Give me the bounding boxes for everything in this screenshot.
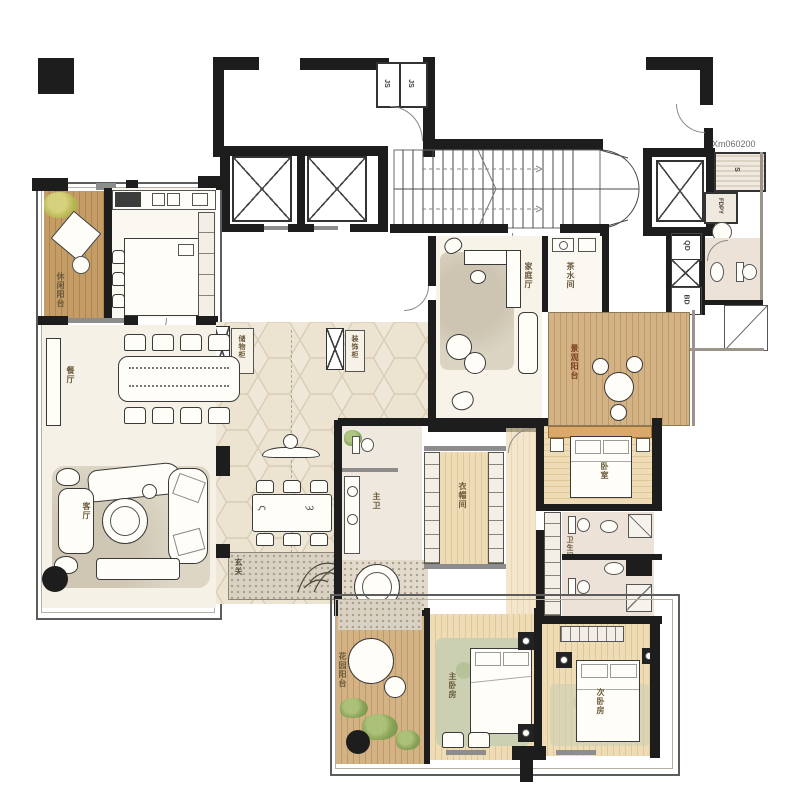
column-circle bbox=[346, 730, 370, 754]
elevator-door bbox=[264, 226, 288, 230]
wall bbox=[32, 178, 68, 191]
shower-icon bbox=[628, 514, 652, 538]
plan-marker-square bbox=[38, 58, 74, 94]
staircase-icon bbox=[392, 148, 672, 230]
room-label-family: 家庭厅 bbox=[524, 262, 532, 289]
room-label-view-balcony: 景观阳台 bbox=[570, 344, 578, 380]
wardrobe bbox=[560, 626, 624, 642]
column-circle bbox=[42, 566, 68, 592]
feature-wall bbox=[214, 446, 230, 476]
wall bbox=[334, 420, 342, 610]
desk-return bbox=[506, 250, 521, 308]
room-label-foyer: 玄关 bbox=[234, 558, 242, 576]
wall bbox=[652, 418, 662, 508]
bar-stool bbox=[112, 272, 125, 286]
wall bbox=[536, 504, 662, 511]
shaft-s: S bbox=[714, 152, 766, 192]
toilet-icon bbox=[361, 438, 374, 452]
nightstand bbox=[518, 632, 534, 650]
window-sill bbox=[556, 750, 596, 755]
room-label-pantry: 茶水间 bbox=[566, 262, 574, 289]
hall-cabinet-right-body: 装饰柜 bbox=[345, 330, 365, 372]
master-bed bbox=[470, 648, 532, 734]
wall bbox=[124, 316, 138, 325]
wall bbox=[338, 418, 548, 426]
elevator-shaft-wall bbox=[220, 224, 264, 232]
wall bbox=[626, 558, 652, 576]
pantry-counter bbox=[578, 238, 596, 252]
elevator-3-icon bbox=[656, 160, 704, 222]
door-arc bbox=[404, 286, 429, 311]
sink-icon bbox=[600, 520, 618, 533]
toilet-icon bbox=[577, 518, 590, 532]
lamp-icon bbox=[522, 637, 530, 645]
table-decor: ȝ bbox=[304, 506, 316, 511]
bench bbox=[96, 558, 180, 580]
window-sill bbox=[446, 750, 486, 755]
lounge-ottoman bbox=[384, 676, 406, 698]
pantry-cabinets bbox=[198, 212, 215, 318]
chair bbox=[283, 480, 301, 493]
shaft-js-label: JS bbox=[383, 79, 390, 88]
wall bbox=[214, 544, 230, 558]
room-label-bedroom1: 卧室 bbox=[600, 462, 608, 480]
pillow bbox=[581, 664, 608, 678]
garden-pad bbox=[338, 600, 422, 630]
chaise-lounge bbox=[168, 468, 208, 564]
plant-icon bbox=[340, 698, 368, 718]
stove-icon bbox=[115, 192, 141, 207]
chair bbox=[283, 533, 301, 546]
wall bbox=[536, 420, 544, 506]
door-arc bbox=[390, 106, 423, 141]
shaft-s-label: S bbox=[733, 167, 740, 172]
wall-fin bbox=[520, 746, 533, 782]
lamp-icon bbox=[522, 729, 530, 737]
pillow bbox=[172, 473, 206, 503]
room-label-leisure-balcony: 休闲阳台 bbox=[56, 272, 64, 308]
shaft-divider bbox=[399, 64, 401, 106]
wall bbox=[196, 316, 218, 325]
sideboard bbox=[46, 338, 61, 426]
room-label-garden-balcony: 花园阳台 bbox=[338, 652, 346, 688]
lamp-icon bbox=[560, 656, 568, 664]
basin bbox=[347, 486, 358, 497]
bar-stool bbox=[112, 294, 125, 308]
kitchen-sink-icon bbox=[152, 193, 165, 206]
hall-dining-table bbox=[252, 494, 332, 532]
outer-line bbox=[692, 310, 695, 426]
wardrobe bbox=[488, 452, 504, 564]
door-arc bbox=[676, 104, 705, 133]
side-table bbox=[142, 484, 157, 499]
desk-chair bbox=[470, 270, 486, 284]
shaft-bd-label: BD bbox=[683, 294, 690, 304]
shaft-bd: BD bbox=[671, 287, 702, 315]
toilet-icon bbox=[577, 580, 590, 594]
chair bbox=[256, 480, 274, 493]
floor-plan: Xm060200 JS JS bbox=[0, 0, 800, 806]
room-label-bedroom2: 次卧房 bbox=[596, 688, 604, 715]
toilet-tank-icon bbox=[568, 516, 576, 534]
kitchen-sink-icon bbox=[167, 193, 180, 206]
bar-stool bbox=[112, 250, 125, 264]
partition bbox=[424, 446, 506, 451]
table-decor bbox=[129, 385, 229, 387]
deck-chair bbox=[626, 356, 643, 373]
chair bbox=[180, 334, 202, 351]
stair-wall bbox=[390, 224, 508, 233]
partition bbox=[424, 564, 506, 569]
partition bbox=[342, 468, 398, 472]
cabinet-label: 储物柜 bbox=[238, 335, 245, 359]
elevator-shaft-wall bbox=[643, 148, 715, 157]
chair bbox=[310, 480, 328, 493]
sink-icon bbox=[604, 562, 624, 575]
wall bbox=[428, 300, 436, 430]
pillow bbox=[610, 664, 637, 678]
sofa-sectional-left bbox=[58, 488, 94, 554]
balcony-stool bbox=[72, 256, 90, 274]
toilet-icon bbox=[742, 264, 757, 280]
table-decor: ς bbox=[257, 505, 269, 510]
pantry-sink-icon bbox=[552, 238, 574, 252]
wall bbox=[213, 57, 224, 157]
shaft-js-label: JS bbox=[407, 79, 414, 88]
shaft-fdpy-label: FDPY bbox=[717, 198, 723, 214]
wall bbox=[534, 608, 542, 758]
chair bbox=[208, 407, 230, 424]
pillow bbox=[575, 440, 601, 454]
room-label-dining: 餐厅 bbox=[66, 366, 74, 384]
room-label-living: 客厅 bbox=[82, 502, 90, 520]
bed-bench bbox=[468, 732, 490, 748]
dining-table bbox=[118, 356, 240, 402]
diagonal bbox=[725, 306, 767, 350]
deck-chair bbox=[610, 404, 627, 421]
nightstand bbox=[556, 652, 572, 668]
elevator-1-icon bbox=[232, 156, 292, 222]
elevator-shaft-wall bbox=[378, 146, 388, 232]
armchair bbox=[56, 468, 80, 486]
kitchen-appliance bbox=[192, 193, 208, 206]
pillow bbox=[173, 528, 206, 556]
table-decor bbox=[129, 367, 229, 369]
pillow bbox=[475, 652, 501, 666]
elevator-shaft-wall bbox=[643, 148, 652, 236]
lounge-chair-round bbox=[348, 638, 394, 684]
coffee-table-inner bbox=[110, 506, 140, 536]
elevator-shaft-wall bbox=[297, 154, 305, 226]
pillow bbox=[503, 652, 529, 666]
plan-code: Xm060200 bbox=[712, 139, 756, 149]
room-label-master-bath: 主卫 bbox=[372, 492, 380, 510]
chair bbox=[152, 334, 174, 351]
chair bbox=[208, 334, 230, 351]
elevator-shaft-wall bbox=[288, 224, 314, 232]
shaft-hatch bbox=[671, 259, 700, 287]
hall-cabinet-right bbox=[326, 328, 344, 370]
wall bbox=[650, 620, 660, 758]
nesting-table bbox=[464, 352, 486, 374]
shaft-js-pair: JS JS bbox=[376, 62, 428, 108]
wall bbox=[700, 57, 713, 105]
shaft-qd: QD bbox=[671, 233, 702, 261]
nightstand bbox=[550, 438, 564, 452]
elevator-2-icon bbox=[307, 156, 367, 222]
bed-bench bbox=[442, 732, 464, 748]
toilet-tank-icon bbox=[352, 436, 360, 454]
wall bbox=[104, 188, 112, 320]
wall bbox=[428, 236, 436, 286]
island-sink-icon bbox=[178, 244, 194, 256]
wall bbox=[38, 316, 68, 325]
bed2 bbox=[576, 660, 640, 742]
plant-icon bbox=[396, 730, 420, 750]
window-sill bbox=[68, 318, 124, 323]
elevator-door bbox=[314, 226, 338, 230]
chair bbox=[152, 407, 174, 424]
console-stool bbox=[283, 434, 298, 449]
deck-table bbox=[604, 372, 634, 402]
nightstand bbox=[518, 724, 534, 742]
pillow bbox=[603, 440, 629, 454]
elevator-shaft-wall bbox=[350, 224, 388, 232]
wardrobe bbox=[424, 452, 440, 564]
chair bbox=[310, 533, 328, 546]
room-label-closet: 衣帽间 bbox=[458, 482, 466, 509]
sofa-small bbox=[518, 312, 538, 374]
shaft-fdpy: FDPY bbox=[704, 192, 738, 224]
deck-chair bbox=[592, 358, 609, 375]
blanket-line bbox=[577, 689, 639, 690]
nightstand bbox=[636, 438, 650, 452]
sink-icon bbox=[710, 262, 724, 282]
basin bbox=[347, 514, 358, 525]
chair bbox=[180, 407, 202, 424]
chair bbox=[256, 533, 274, 546]
cabinet-label: 装饰柜 bbox=[351, 335, 358, 359]
equipment-platform bbox=[724, 305, 768, 351]
blanket-line bbox=[471, 676, 531, 683]
chair bbox=[124, 334, 146, 351]
shaft-qd-label: QD bbox=[683, 240, 690, 251]
dressing-corridor bbox=[506, 428, 536, 616]
room-label-master-bedroom: 主卧房 bbox=[448, 672, 456, 699]
basin bbox=[559, 241, 568, 250]
chair bbox=[124, 407, 146, 424]
